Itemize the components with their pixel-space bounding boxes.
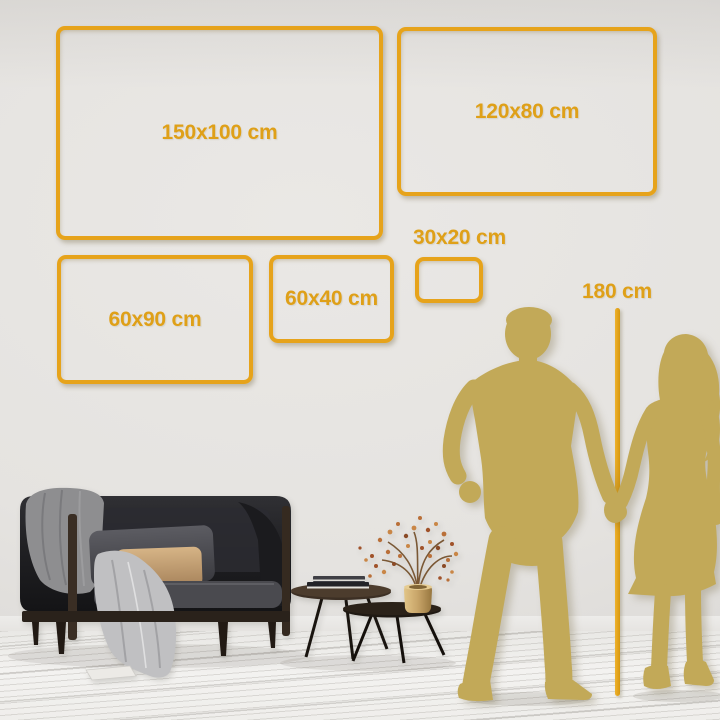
man-hand-left — [459, 481, 481, 503]
man-silhouette — [451, 307, 626, 701]
man-leg-right — [549, 542, 559, 683]
man-foot-right — [545, 679, 592, 700]
woman-foot-left — [643, 664, 671, 689]
woman-leg-right — [693, 590, 695, 662]
silhouettes-layer — [0, 0, 720, 720]
man-foot-left — [458, 680, 493, 702]
woman-hand-left — [609, 503, 627, 521]
woman-arm-left — [621, 412, 652, 502]
size-guide-scene: 150x100 cm 120x80 cm 60x90 cm 60x40 cm 3… — [0, 0, 720, 720]
man-leg-left — [476, 540, 502, 684]
man-arm-left — [451, 388, 474, 476]
woman-arm-right — [706, 414, 715, 508]
woman-neck — [675, 378, 689, 396]
woman-silhouette — [609, 334, 720, 689]
woman-leg-left — [659, 592, 663, 668]
woman-foot-right — [684, 660, 714, 686]
